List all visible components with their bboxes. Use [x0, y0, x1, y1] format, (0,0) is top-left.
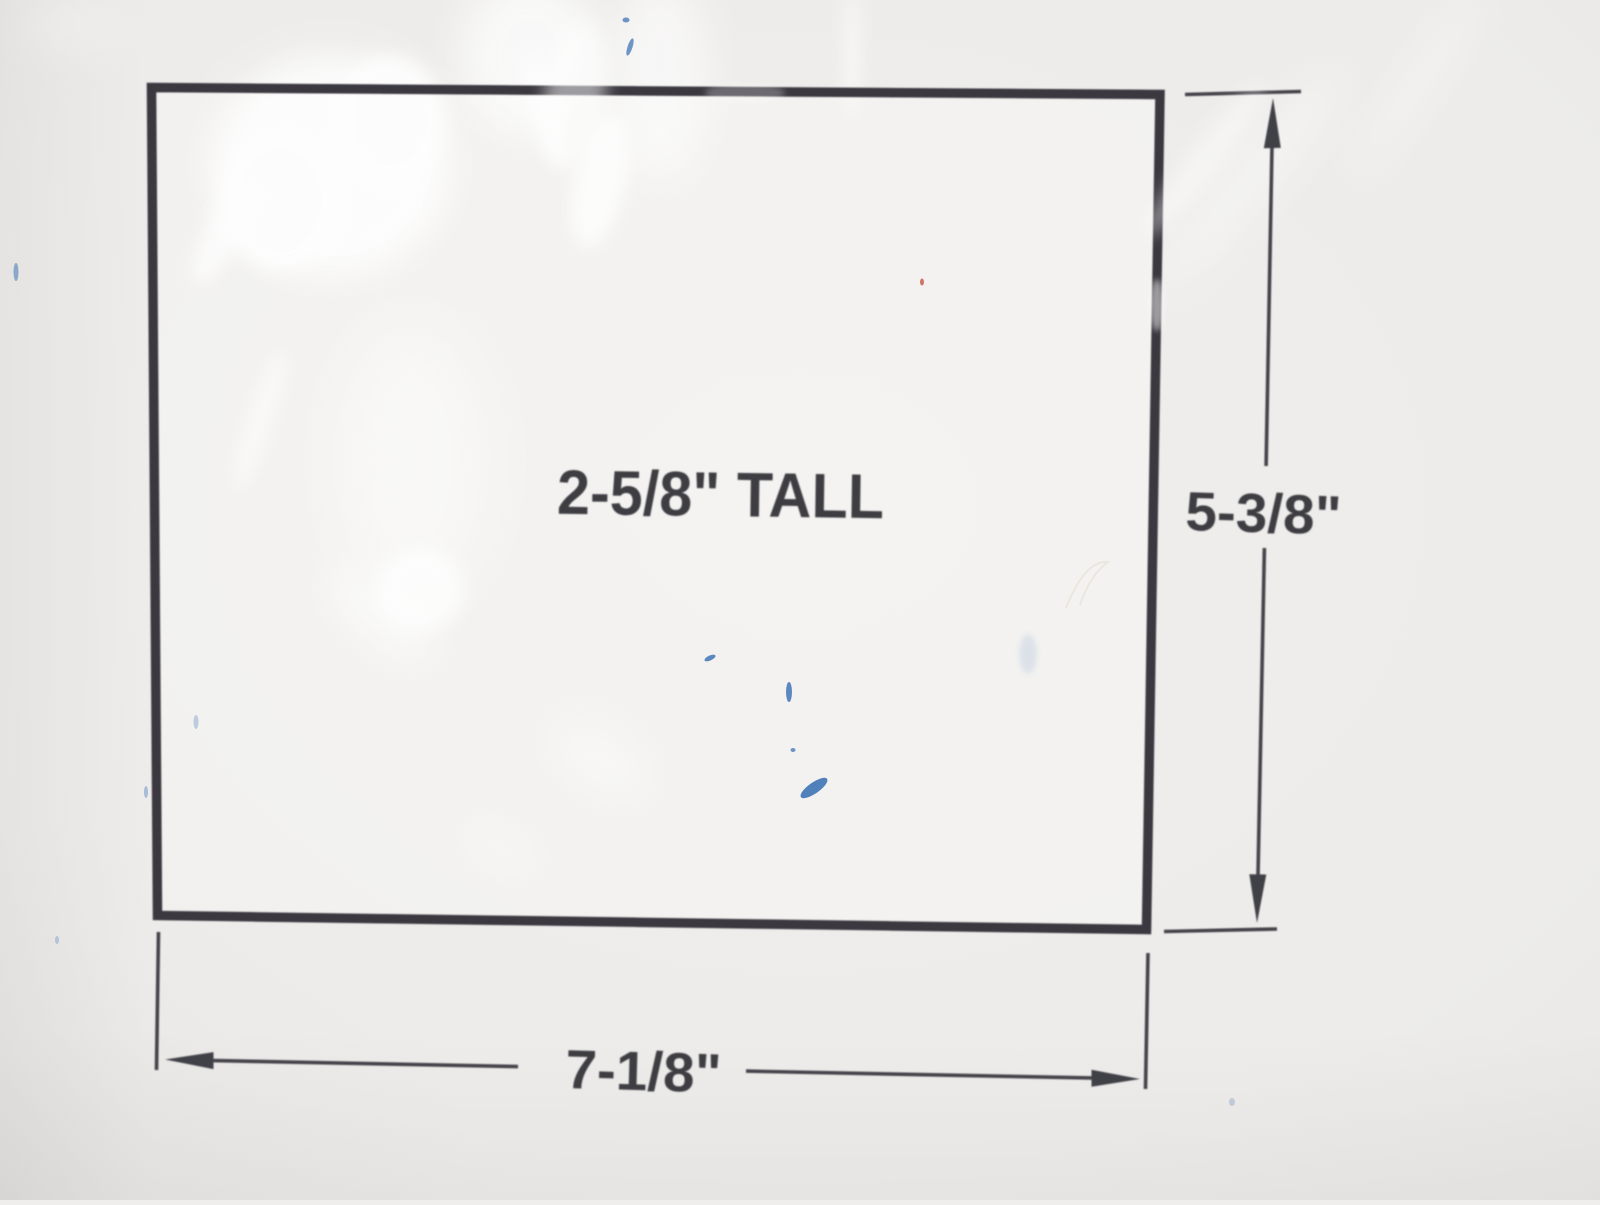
- svg-text:5-3/8": 5-3/8": [1185, 480, 1343, 546]
- svg-text:7-1/8": 7-1/8": [565, 1038, 723, 1104]
- svg-text:2-5/8" TALL: 2-5/8" TALL: [557, 458, 885, 533]
